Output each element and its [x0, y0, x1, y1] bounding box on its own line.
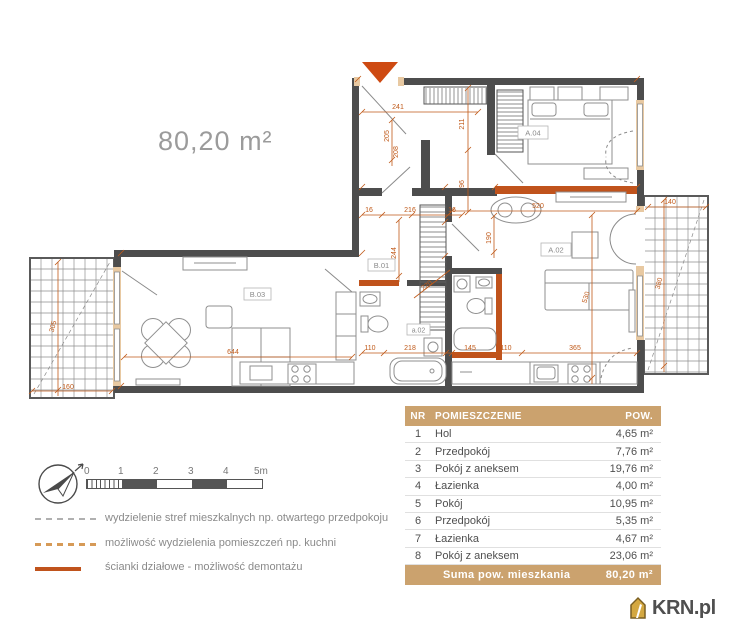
scale-segment	[192, 480, 227, 488]
cell-nr: 2	[405, 446, 431, 458]
dim-160: 160	[62, 384, 74, 391]
cell-name: Przedpokój	[431, 446, 579, 458]
krn-house-icon	[628, 596, 648, 620]
header-name: POMIESZCZENIE	[431, 411, 579, 422]
krn-logo-text: KRN.pl	[652, 597, 716, 620]
cell-nr: 5	[405, 498, 431, 510]
room-area-table: NR POMIESZCZENIE POW. 1 Hol 4,65 m² 2 Pr…	[405, 406, 661, 585]
cell-name: Pokój z aneksem	[431, 463, 579, 475]
legend-label: ścianki działowe - możliwość demontażu	[105, 561, 302, 573]
cell-nr: 1	[405, 428, 431, 440]
dim-110a: 110	[364, 345, 375, 352]
balcony-left	[30, 258, 114, 398]
cell-nr: 7	[405, 533, 431, 545]
legend-label: możliwość wydzielenia pomieszczeń np. ku…	[105, 537, 336, 549]
dim-16b: 16	[448, 207, 456, 214]
room-label-a02s: a.02	[412, 328, 426, 335]
footer-label: Suma pow. mieszkania	[431, 569, 579, 581]
dim-96: 96	[459, 180, 466, 188]
table-footer: Suma pow. mieszkania 80,20 m²	[405, 565, 661, 585]
table-row: 3 Pokój z aneksem 19,76 m²	[405, 461, 661, 478]
dim-16a: 16	[365, 207, 373, 214]
dim-241: 241	[392, 104, 404, 111]
krn-logo: KRN.pl	[628, 596, 716, 620]
legend-swatch-orange-solid	[35, 567, 81, 571]
room-label-a02: A.02	[548, 246, 563, 255]
dim-208: 208	[393, 146, 400, 158]
cell-nr: 8	[405, 550, 431, 562]
dim-644: 644	[227, 349, 239, 356]
cell-nr: 6	[405, 515, 431, 527]
dim-380: 380	[655, 277, 665, 290]
cell-nr: 4	[405, 480, 431, 492]
dim-216: 216	[404, 207, 416, 214]
floor-plan-page: 80,20 m²	[0, 0, 740, 639]
scale-tick-2: 2	[153, 466, 159, 477]
room-label-b03: B.03	[250, 290, 265, 299]
table-row: 5 Pokój 10,95 m²	[405, 496, 661, 513]
cell-area: 10,95 m²	[579, 498, 661, 510]
header-area: POW.	[579, 411, 661, 422]
cell-area: 23,06 m²	[579, 550, 661, 562]
cell-area: 4,67 m²	[579, 533, 661, 545]
table-row: 8 Pokój z aneksem 23,06 m²	[405, 548, 661, 565]
dim-244: 244	[391, 247, 398, 259]
scale-segment	[122, 480, 157, 488]
table-row: 1 Hol 4,65 m²	[405, 426, 661, 443]
table-row: 7 Łazienka 4,67 m²	[405, 530, 661, 547]
scale-tick-5: 5m	[254, 466, 268, 477]
cell-area: 7,76 m²	[579, 446, 661, 458]
cell-area: 5,35 m²	[579, 515, 661, 527]
scale-tick-4: 4	[223, 466, 229, 477]
floor-plan-drawing: 241 211 96 16 216 16 244 205 208 220 520…	[0, 0, 740, 412]
table-row: 6 Przedpokój 5,35 m²	[405, 513, 661, 530]
cell-name: Pokój	[431, 498, 579, 510]
table-header: NR POMIESZCZENIE POW.	[405, 406, 661, 426]
cell-area: 19,76 m²	[579, 463, 661, 475]
room-label-b01: B.01	[374, 261, 389, 270]
dim-190: 190	[486, 232, 493, 244]
scale-segment	[227, 480, 262, 488]
room-label-a04: A.04	[525, 129, 540, 138]
dim-110b: 110	[500, 345, 511, 352]
cell-name: Łazienka	[431, 533, 579, 545]
dim-520: 520	[532, 203, 544, 210]
dim-305: 305	[49, 320, 59, 333]
table-row: 4 Łazienka 4,00 m²	[405, 478, 661, 495]
dim-365: 365	[569, 345, 581, 352]
scale-bar: 0 1 2 3 4 5m	[86, 466, 266, 490]
room-b03-furniture	[136, 257, 356, 386]
dim-145: 145	[464, 345, 476, 352]
dim-211: 211	[459, 118, 466, 129]
cell-area: 4,65 m²	[579, 428, 661, 440]
room-labels: A.04 A.02 B.01 B.03 a.02	[244, 126, 571, 335]
header-nr: NR	[405, 411, 431, 422]
scale-tick-1: 1	[118, 466, 124, 477]
cell-area: 4,00 m²	[579, 480, 661, 492]
table-row: 2 Przedpokój 7,76 m²	[405, 443, 661, 460]
cell-name: Pokój z aneksem	[431, 550, 579, 562]
legend-label: wydzielenie stref mieszkalnych np. otwar…	[105, 512, 388, 524]
total-area-label: 80,20 m²	[158, 126, 273, 157]
footer-area: 80,20 m²	[579, 569, 661, 581]
legend-swatch-gray-dash	[35, 518, 99, 520]
scale-segment	[87, 480, 122, 488]
north-arrow-compass-icon	[30, 456, 90, 506]
dim-205: 205	[384, 130, 391, 142]
cell-name: Hol	[431, 428, 579, 440]
scale-tick-3: 3	[188, 466, 194, 477]
legend-swatch-orange-dash	[35, 543, 99, 546]
dim-218: 218	[404, 345, 416, 352]
cell-name: Przedpokój	[431, 515, 579, 527]
scale-bar-strip	[86, 479, 263, 489]
balcony-right	[644, 196, 708, 374]
dim-140: 140	[664, 199, 676, 206]
scale-tick-0: 0	[84, 466, 90, 477]
cell-nr: 3	[405, 463, 431, 475]
cell-name: Łazienka	[431, 480, 579, 492]
scale-segment	[157, 480, 192, 488]
